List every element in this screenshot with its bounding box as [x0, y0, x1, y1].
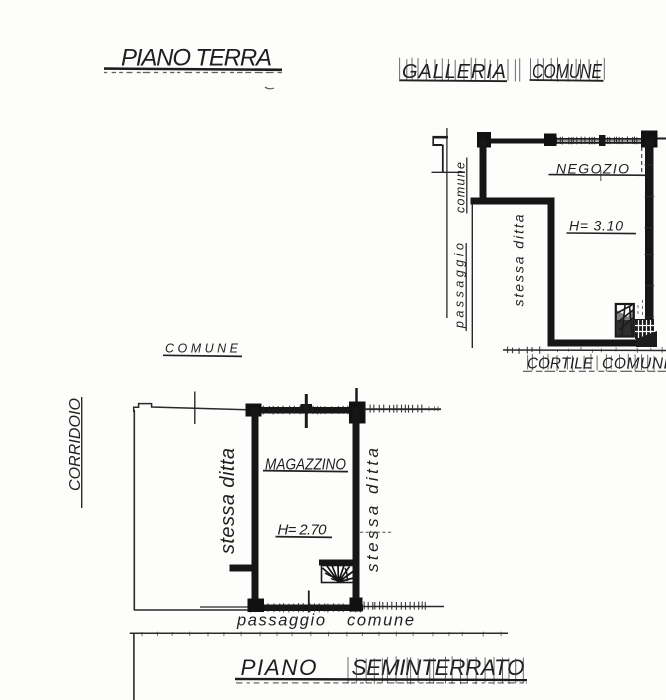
svg-text:stessa ditta: stessa ditta — [363, 448, 382, 572]
svg-text:passaggio: passaggio — [453, 243, 467, 329]
svg-text:CORTILE: CORTILE — [527, 356, 594, 373]
svg-text:stessa ditta: stessa ditta — [217, 448, 239, 554]
svg-text:PIANO: PIANO — [241, 655, 317, 680]
svg-text:COMUNE: COMUNE — [165, 342, 239, 356]
svg-text:passaggio: passaggio — [236, 612, 325, 630]
svg-text:H= 3.10: H= 3.10 — [569, 218, 623, 234]
svg-text:comune: comune — [347, 612, 414, 630]
svg-text:COMUNE: COMUNE — [602, 356, 666, 373]
svg-text:SEMINTERRATO: SEMINTERRATO — [352, 655, 525, 680]
svg-text:stessa ditta: stessa ditta — [511, 214, 527, 306]
svg-text:comune: comune — [454, 162, 468, 213]
svg-text:PIANO TERRA: PIANO TERRA — [121, 45, 272, 72]
